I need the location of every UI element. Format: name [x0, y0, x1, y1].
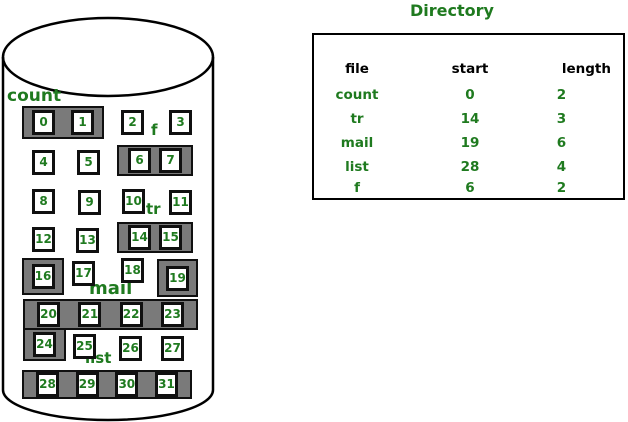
directory-header-file: file	[314, 61, 400, 77]
allocation-mail: 20 21 22 23	[23, 299, 198, 330]
disk-block-27: 27	[161, 336, 184, 361]
directory-cell-start: 28	[400, 159, 540, 175]
allocation-list: 28 29 30 31	[22, 370, 192, 399]
contiguous-allocation-diagram: count f tr mail list 0 1 2 3 4 5 6 7 8 9…	[0, 0, 628, 422]
directory-cell-length: 3	[540, 111, 623, 127]
directory-row-list: list 28 4	[314, 155, 623, 179]
directory-cell-file: list	[314, 159, 400, 175]
disk-block-22: 22	[120, 302, 143, 327]
directory-cell-file: mail	[314, 135, 400, 151]
disk-block-28: 28	[36, 372, 59, 397]
directory-cell-file: tr	[314, 111, 400, 127]
disk-block-11: 11	[169, 190, 192, 215]
directory-row-f: f 6 2	[314, 179, 623, 197]
file-label-tr: tr	[146, 200, 161, 218]
directory-cell-length: 4	[540, 159, 623, 175]
disk-block-6: 6	[128, 148, 151, 173]
disk-block-26: 26	[119, 336, 142, 361]
directory-row-count: count 0 2	[314, 83, 623, 107]
directory-cell-length: 2	[540, 180, 623, 196]
disk-block-20: 20	[37, 302, 60, 327]
directory-header-length: length	[540, 61, 623, 77]
allocation-tr-block-16: 16	[22, 258, 64, 295]
disk-block-14: 14	[128, 225, 151, 250]
disk-block-10: 10	[122, 189, 145, 214]
disk-block-5: 5	[77, 150, 100, 175]
disk-block-19: 19	[166, 266, 189, 291]
disk-block-21: 21	[78, 302, 101, 327]
disk-block-3: 3	[169, 110, 192, 135]
directory-row-tr: tr 14 3	[314, 107, 623, 131]
directory-row-mail: mail 19 6	[314, 131, 623, 155]
disk-block-31: 31	[155, 372, 178, 397]
file-label-f: f	[151, 121, 158, 139]
allocation-f: 6 7	[117, 145, 193, 176]
directory-cell-length: 2	[540, 87, 623, 103]
disk-block-16: 16	[32, 264, 55, 289]
disk-block-0: 0	[32, 110, 55, 135]
disk-block-13: 13	[76, 228, 99, 253]
directory-table: file start length count 0 2 tr 14 3 mail…	[312, 33, 625, 200]
disk-block-15: 15	[159, 225, 182, 250]
directory-cell-start: 6	[400, 180, 540, 196]
directory-cell-length: 6	[540, 135, 623, 151]
disk-block-30: 30	[115, 372, 138, 397]
disk-block-24: 24	[33, 332, 56, 357]
directory-title: Directory	[312, 1, 592, 20]
disk-block-8: 8	[32, 189, 55, 214]
directory-cell-file: count	[314, 87, 400, 103]
directory-cell-file: f	[314, 180, 400, 196]
allocation-count: 0 1	[22, 106, 104, 139]
allocation-tr: 14 15	[117, 222, 193, 253]
directory-header-start: start	[400, 61, 540, 77]
disk-block-12: 12	[32, 227, 55, 252]
disk-block-2: 2	[121, 110, 144, 135]
disk-block-29: 29	[76, 372, 99, 397]
allocation-mail-block-24: 24	[23, 328, 66, 361]
directory-cell-start: 14	[400, 111, 540, 127]
disk-block-18: 18	[121, 258, 144, 283]
disk-block-23: 23	[161, 302, 184, 327]
directory-cell-start: 19	[400, 135, 540, 151]
disk-block-9: 9	[78, 190, 101, 215]
directory-header-row: file start length	[314, 55, 623, 83]
allocation-mail-block-19: 19	[157, 259, 198, 297]
file-label-count: count	[7, 86, 61, 106]
disk-block-4: 4	[32, 150, 55, 175]
disk-block-1: 1	[71, 110, 94, 135]
disk-block-17: 17	[72, 261, 95, 286]
disk-block-25: 25	[73, 334, 96, 359]
directory-cell-start: 0	[400, 87, 540, 103]
disk-block-7: 7	[159, 148, 182, 173]
